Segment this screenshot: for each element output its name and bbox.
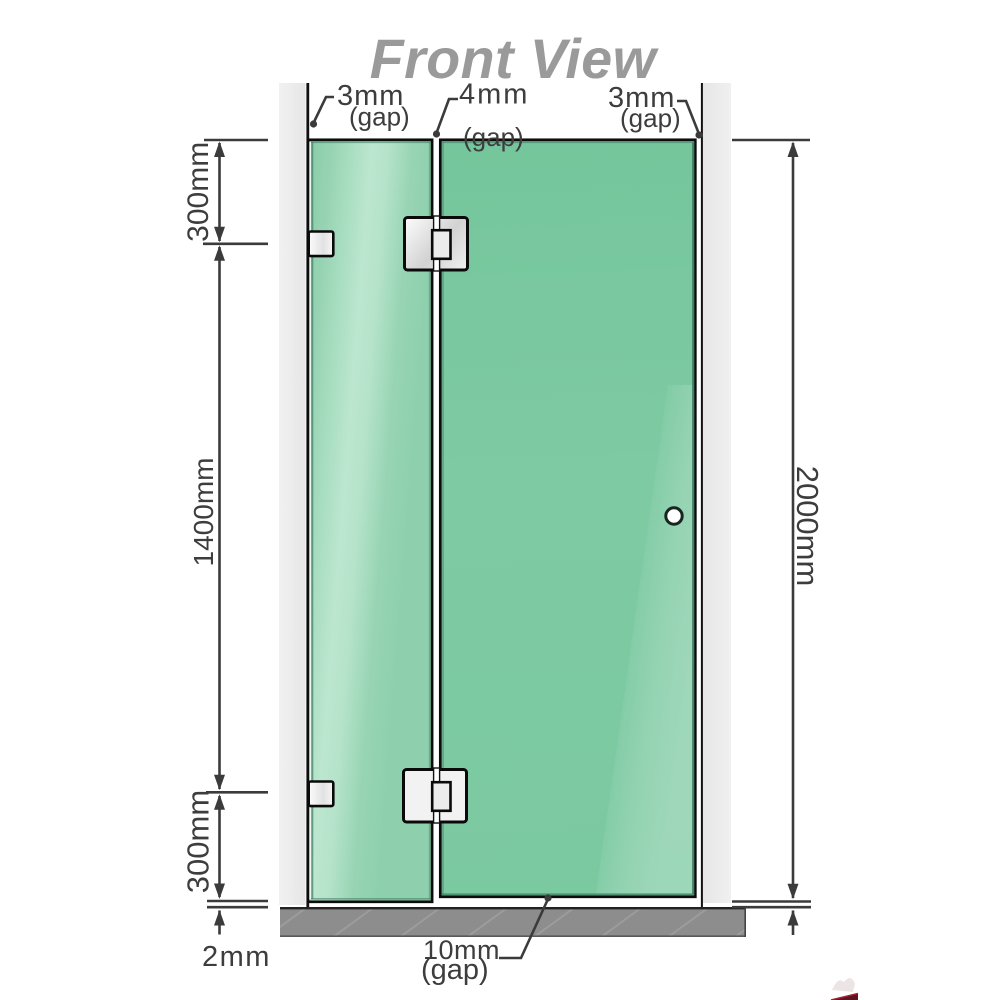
svg-text:300mm: 300mm <box>182 142 215 242</box>
svg-text:2mm: 2mm <box>202 941 271 973</box>
svg-text:4mm: 4mm <box>459 79 529 111</box>
svg-text:300mm: 300mm <box>181 790 216 893</box>
svg-text:(gap): (gap) <box>349 102 410 132</box>
svg-text:(gap): (gap) <box>421 954 489 986</box>
svg-text:2000mm: 2000mm <box>790 466 825 587</box>
svg-text:(gap): (gap) <box>620 103 681 133</box>
svg-text:1400mm: 1400mm <box>188 458 219 567</box>
svg-text:(gap): (gap) <box>463 122 524 152</box>
